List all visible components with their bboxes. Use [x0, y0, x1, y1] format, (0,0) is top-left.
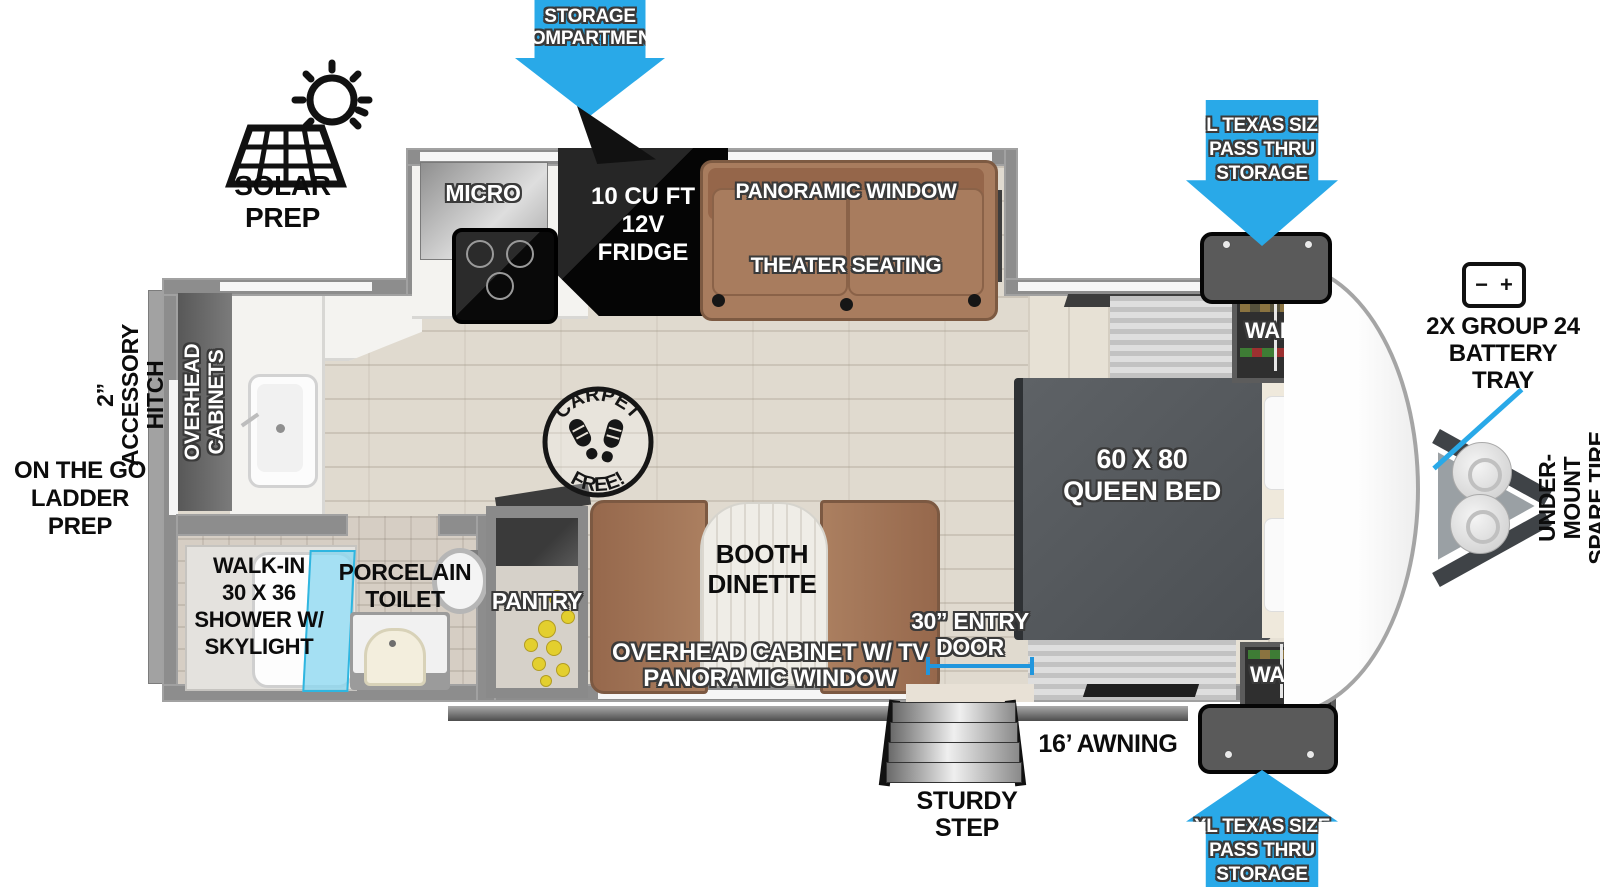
theater-seating-text: THEATER SEATING	[751, 254, 942, 278]
queen-bed-label: 60 X 80 QUEEN BED	[1022, 442, 1262, 508]
battery-tray-line3: TRAY	[1472, 367, 1534, 394]
toilet-label: PORCELAIN TOILET	[334, 558, 476, 614]
entry-door-line2: DOOR	[936, 634, 1004, 660]
window-kitchen-top	[420, 152, 558, 161]
step-tread	[888, 742, 1020, 763]
awning-text: 16’ AWNING	[1038, 730, 1177, 759]
sturdy-step-line1: STURDY	[917, 788, 1018, 815]
pass-thru-bottom-line1: XL TEXAS SIZE	[1194, 815, 1330, 839]
panoramic-window-top-label: PANORAMIC WINDOW	[706, 180, 986, 204]
rear-overhead-cabinet-label: OVERHEAD CABINETS	[179, 317, 231, 487]
wall-step-right	[1004, 148, 1018, 296]
pantry-shelf-shadow	[496, 518, 578, 566]
fridge-line1: 10 CU FT	[591, 183, 695, 211]
window-rear-top	[220, 282, 372, 291]
spare-tire-line1: UNDER-MOUNT	[1535, 413, 1585, 583]
pass-thru-bottom-arrow: XL TEXAS SIZE PASS THRU STORAGE	[1186, 770, 1338, 887]
shower-line4: SKYLIGHT	[205, 633, 314, 660]
entry-door-label: 30” ENTRY DOOR	[888, 608, 1052, 660]
pass-thru-door-bottom	[1198, 704, 1338, 774]
theater-cupholder	[968, 294, 981, 307]
pantry-text: PANTRY	[492, 588, 582, 615]
fridge-line3: FRIDGE	[598, 239, 689, 267]
theater-cushion-right	[848, 188, 984, 296]
pantry-item	[538, 620, 556, 638]
pass-thru-door-top-rivet	[1304, 240, 1313, 249]
sturdy-step-label: STURDY STEP	[888, 788, 1046, 842]
toilet-line1: PORCELAIN	[339, 559, 472, 586]
entry-door-line1: 30” ENTRY	[911, 608, 1029, 634]
sun-icon	[295, 63, 369, 126]
pass-thru-bottom-line2: PASS THRU	[1209, 839, 1315, 863]
ladder-prep-line1: ON THE GO	[14, 457, 146, 485]
microwave-text: MICRO	[445, 180, 520, 207]
pantry-label: PANTRY	[487, 588, 587, 614]
battery-plus: +	[1500, 272, 1513, 298]
overhead-cabinet-tv-text: OVERHEAD CABINET W/ TV	[612, 639, 928, 667]
pantry-item	[540, 675, 552, 687]
pass-thru-bottom-line3: STORAGE	[1216, 863, 1308, 887]
window-rear-wall	[169, 380, 178, 515]
shower-label: WALK-IN 30 X 36 SHOWER W/ SKYLIGHT	[178, 548, 340, 664]
storage-compartment-line1: STORAGE	[544, 6, 636, 28]
battery-icon: − +	[1462, 262, 1526, 308]
cooktop-burner	[486, 272, 514, 300]
propane-tank-valve	[1466, 510, 1500, 544]
microwave-label: MICRO	[420, 180, 546, 206]
pass-thru-top-line2: PASS THRU	[1209, 138, 1315, 162]
shower-line1: WALK-IN	[213, 552, 305, 579]
spare-tire-label: UNDER-MOUNT SPARE TIRE	[1546, 413, 1598, 583]
sturdy-step-line2: STEP	[935, 815, 999, 842]
rear-overhead-line1: OVERHEAD	[181, 344, 205, 461]
theater-seating-label: THEATER SEATING	[706, 254, 986, 278]
dinette-label: BOOTH DINETTE	[688, 540, 836, 598]
accessory-hitch-label: 2” ACCESSORY HITCH	[104, 310, 156, 480]
pass-thru-door-bottom-rivet	[1306, 750, 1315, 759]
shower-line2: 30 X 36	[222, 579, 296, 606]
step-tread	[886, 762, 1022, 783]
fridge-line2: 12V	[622, 211, 665, 239]
bed-platform-mat	[1083, 684, 1199, 697]
queen-bed-line1: 60 X 80	[1097, 443, 1188, 475]
ladder-prep-label: ON THE GO LADDER PREP	[0, 470, 160, 528]
accessory-hitch-line1: 2” ACCESSORY	[93, 310, 143, 480]
ladder-prep-line2: LADDER PREP	[0, 485, 160, 541]
toilet-line2: TOILET	[365, 586, 445, 613]
battery-minus: −	[1475, 272, 1488, 298]
dinette-line1: BOOTH	[716, 539, 808, 569]
storage-compartment-line2: COMPARTMENT	[517, 28, 662, 50]
spare-tire-line2: SPARE TIRE	[1585, 431, 1600, 564]
cooktop-burner	[506, 240, 534, 268]
awning-rail	[448, 706, 1188, 721]
solar-prep-text: SOLAR PREP	[200, 170, 365, 234]
battery-tray-line1: 2X GROUP 24	[1426, 313, 1580, 340]
front-cap	[1284, 262, 1420, 716]
pass-thru-top-arrow: XL TEXAS SIZE PASS THRU STORAGE	[1186, 100, 1338, 246]
rear-overhead-line2: CABINETS	[205, 350, 229, 455]
step-tread	[892, 702, 1016, 723]
queen-bed	[1014, 378, 1271, 640]
carpet-free-stamp: CARPET FREE!	[540, 384, 656, 500]
bed-platform-top	[1110, 296, 1236, 380]
bath-sink-faucet	[389, 640, 396, 647]
theater-cupholder	[840, 298, 853, 311]
cooktop-burner	[466, 240, 494, 268]
theater-cupholder	[712, 294, 725, 307]
entry-door-dimension-tick	[926, 657, 930, 675]
pass-thru-top-line3: STORAGE	[1216, 162, 1308, 186]
panoramic-window-top-text: PANORAMIC WINDOW	[735, 180, 956, 204]
entry-door-dimension-line	[928, 664, 1032, 668]
solar-prep-label: SOLAR PREP	[200, 186, 365, 218]
theater-cushion-left	[712, 188, 848, 296]
rear-sink-drain	[276, 424, 285, 433]
queen-bed-line2: QUEEN BED	[1063, 475, 1221, 507]
dinette-line2: DINETTE	[707, 569, 816, 599]
accessory-hitch-line2: HITCH	[143, 361, 168, 430]
panoramic-window-bottom-text: PANORAMIC WINDOW	[643, 665, 896, 693]
step-tread	[890, 722, 1018, 743]
wall-bath-divider	[176, 514, 348, 536]
battery-tray-label: 2X GROUP 24 BATTERY TRAY	[1406, 312, 1600, 394]
pantry-item	[524, 638, 538, 652]
rv-floorplan: OVERHEAD CABINETS WALK-IN 30 X 36 SHOWER…	[0, 0, 1600, 887]
pantry-item	[532, 657, 546, 671]
pass-thru-door-top-rivet	[1222, 240, 1231, 249]
shower-line3: SHOWER W/	[194, 606, 323, 633]
pass-thru-top-line1: XL TEXAS SIZE	[1194, 114, 1330, 138]
entry-door-dimension-tick	[1030, 657, 1034, 675]
awning-label: 16’ AWNING	[1018, 730, 1198, 758]
pass-thru-door-bottom-rivet	[1224, 750, 1233, 759]
bath-sink	[364, 628, 426, 686]
propane-tank-valve	[1468, 458, 1502, 492]
battery-tray-line2: BATTERY	[1449, 340, 1558, 367]
storage-compartment-arrow: STORAGE COMPARTMENT	[515, 0, 665, 116]
